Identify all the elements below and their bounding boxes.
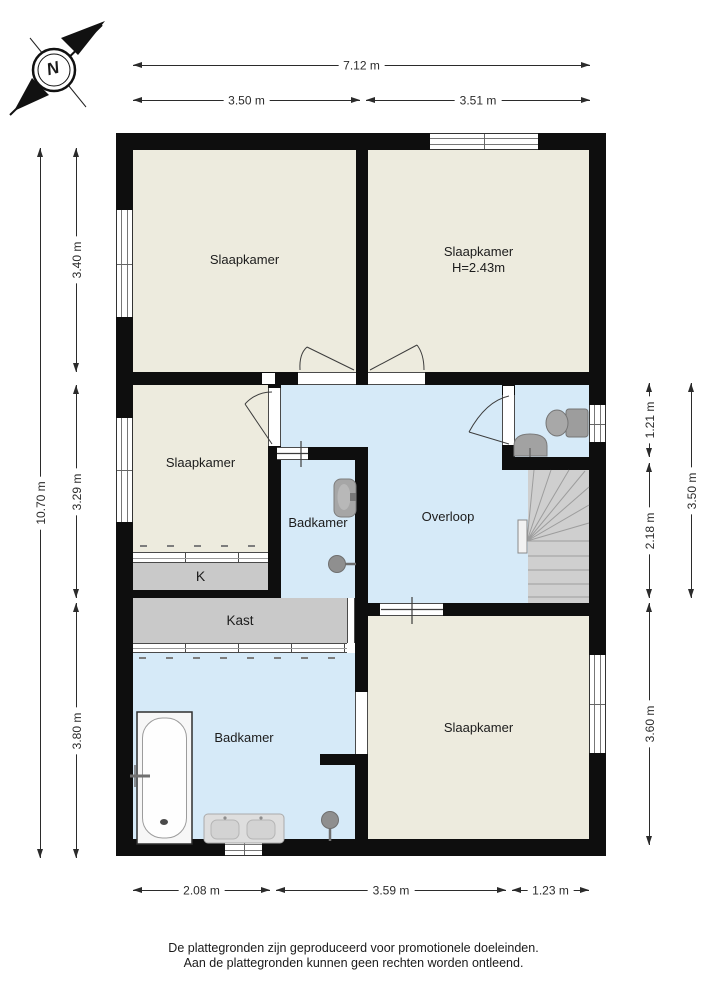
disclaimer-line-1: De plattegronden zijn geproduceerd voor … bbox=[0, 941, 707, 956]
room-slaapkamer-top-right: Slaapkamer H=2.43m bbox=[368, 148, 589, 372]
window-left-bedroom-1 bbox=[116, 210, 133, 317]
dim-label: 3.59 m bbox=[368, 884, 415, 898]
dim-right-bottom: 3.60 m bbox=[649, 603, 650, 845]
room-label: Overloop bbox=[422, 509, 475, 525]
dim-right-stairs: 2.18 m bbox=[649, 463, 650, 598]
door-jamb bbox=[503, 386, 514, 395]
dim-right-total: 3.50 m bbox=[691, 383, 692, 598]
kast-end-opening bbox=[347, 598, 355, 643]
room-height-note: H=2.43m bbox=[452, 260, 505, 276]
dim-bottom-left: 2.08 m bbox=[133, 890, 270, 891]
room-kast: Kast bbox=[133, 598, 347, 643]
dim-label: 3.50 m bbox=[223, 94, 270, 108]
dim-label: 3.60 m bbox=[643, 701, 657, 748]
sliding-rail-kast bbox=[133, 643, 347, 653]
room-badkamer-mid: Badkamer bbox=[281, 460, 355, 585]
dim-label: 2.18 m bbox=[643, 507, 657, 554]
dim-label: 3.29 m bbox=[70, 468, 84, 515]
dim-left-top: 3.40 m bbox=[76, 148, 77, 372]
dim-right-wc: 1.21 m bbox=[649, 383, 650, 457]
room-label: Kast bbox=[226, 613, 253, 629]
dim-left-bottom: 3.80 m bbox=[76, 603, 77, 858]
doorway-badkamer-bedroom bbox=[355, 692, 368, 754]
wall-v3-lower bbox=[355, 754, 368, 855]
room-label: Slaapkamer bbox=[166, 455, 235, 471]
room-overloop: Overloop bbox=[368, 447, 528, 587]
disclaimer-line-2: Aan de plattegronden kunnen geen rechten… bbox=[0, 956, 707, 971]
room-slaapkamer-bottom-right: Slaapkamer bbox=[368, 616, 589, 839]
room-label: K bbox=[196, 568, 205, 584]
dim-top-left: 3.50 m bbox=[133, 100, 360, 101]
dim-top-right: 3.51 m bbox=[366, 100, 590, 101]
staircase bbox=[528, 470, 589, 603]
floorplan-page: N Slaapkamer Slaapkamer H=2.43m Slaapkam… bbox=[0, 0, 707, 1000]
wall-h4-left bbox=[116, 590, 281, 598]
doorway-slaapkamer-ml bbox=[268, 388, 281, 446]
doorway-slaapkamer-tl bbox=[298, 372, 356, 385]
dim-label: 7.12 m bbox=[338, 59, 385, 73]
floor-corridor bbox=[281, 385, 502, 447]
room-badkamer-bottom: Badkamer bbox=[133, 660, 355, 815]
window-left-bedroom-2 bbox=[116, 418, 133, 522]
window-bottom-small bbox=[225, 839, 262, 856]
dim-label: 1.23 m bbox=[527, 884, 574, 898]
room-slaapkamer-mid-left: Slaapkamer bbox=[133, 385, 268, 540]
dim-left-mid: 3.29 m bbox=[76, 385, 77, 598]
dim-left-total: 10.70 m bbox=[40, 148, 41, 858]
room-slaapkamer-top-left: Slaapkamer bbox=[133, 148, 356, 372]
room-label: Slaapkamer bbox=[210, 252, 279, 268]
dim-top-total: 7.12 m bbox=[133, 65, 590, 66]
doorway-slaapkamer-br bbox=[380, 603, 443, 616]
dim-label: 10.70 m bbox=[34, 476, 48, 529]
dim-label: 2.08 m bbox=[178, 884, 225, 898]
doorway-badkamer-mid bbox=[277, 447, 308, 460]
wall-v3-upper bbox=[355, 447, 368, 692]
room-label: Badkamer bbox=[214, 730, 273, 746]
dim-label: 3.51 m bbox=[455, 94, 502, 108]
room-closet-k: K bbox=[133, 561, 268, 590]
window-wc bbox=[589, 405, 606, 442]
dim-bottom-mid: 3.59 m bbox=[276, 890, 506, 891]
dim-label: 1.21 m bbox=[643, 397, 657, 444]
door-jamb bbox=[262, 373, 275, 384]
dim-label: 3.80 m bbox=[70, 707, 84, 754]
room-label: Slaapkamer bbox=[444, 720, 513, 736]
wall-h1-c bbox=[425, 372, 589, 385]
dim-label: 3.50 m bbox=[685, 467, 699, 514]
slide-marks-k bbox=[140, 545, 262, 547]
disclaimer: De plattegronden zijn geproduceerd voor … bbox=[0, 941, 707, 971]
room-label: Slaapkamer bbox=[444, 244, 513, 260]
dim-label: 3.40 m bbox=[70, 237, 84, 284]
dim-bottom-right: 1.23 m bbox=[512, 890, 589, 891]
doorway-wc bbox=[502, 395, 515, 445]
doorway-slaapkamer-tr bbox=[368, 372, 425, 385]
slide-marks-kast bbox=[139, 657, 347, 659]
wall-v1 bbox=[356, 150, 368, 372]
window-right-bedroom bbox=[589, 655, 606, 753]
wall-h1-b bbox=[356, 372, 368, 385]
room-label: Badkamer bbox=[288, 515, 347, 531]
